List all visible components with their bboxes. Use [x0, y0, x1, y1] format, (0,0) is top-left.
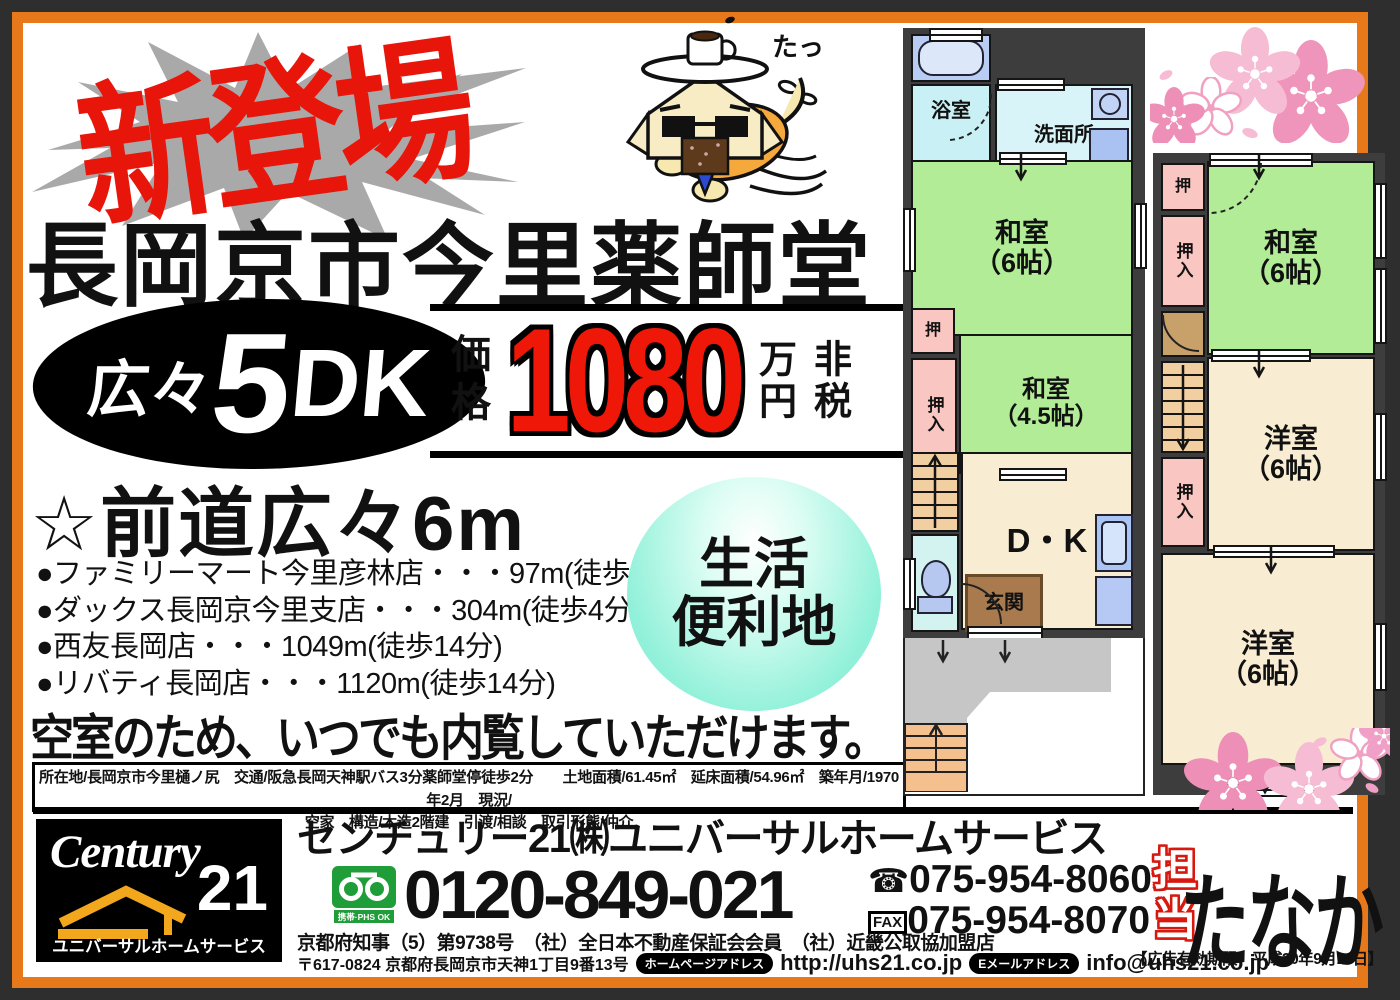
window-mark — [1374, 623, 1387, 691]
price-amount: 1080 — [506, 307, 740, 455]
century21-logo: Century 21 ユニバーサルホームサービス — [36, 819, 282, 962]
company-name: センチュリー21㈱ユニバーサルホームサービス — [297, 818, 1107, 860]
list-item: ●リバティ長岡店・・・1120m(徒歩14分) — [36, 666, 683, 703]
kitchen-sink-bowl — [1101, 521, 1127, 565]
sink-bowl — [1099, 93, 1121, 115]
closet-oshiire-lower: 押入 — [1161, 457, 1205, 547]
mascot-dog-illustration: たっ — [610, 14, 840, 209]
window-mark — [1374, 183, 1387, 259]
room-label: 押入 — [924, 396, 943, 434]
homepage-url: http://uhs21.co.jp — [780, 950, 962, 976]
closet-oshi: 押 — [1161, 163, 1205, 211]
room-label: 和室 （6帖） — [1243, 228, 1339, 288]
window-mark — [1374, 413, 1387, 481]
toilet-tank-icon — [917, 596, 953, 614]
logo-brand-text: Century — [50, 825, 200, 879]
window-mark — [997, 78, 1065, 91]
homepage-label-pill: ホームページアドレス — [636, 953, 773, 974]
email-label-pill: Eメールアドレス — [969, 953, 1079, 974]
window-mark — [903, 558, 916, 610]
room-label: 押入 — [1173, 242, 1192, 280]
stairs-1f — [911, 452, 959, 532]
window-mark — [1209, 153, 1313, 167]
cherry-blossoms-bottom — [1160, 728, 1390, 810]
door-opening — [1213, 545, 1335, 558]
room-label: 洋室 （6帖） — [1243, 424, 1339, 484]
room-washitsu-6: 和室 （6帖） — [1207, 161, 1375, 355]
room-label: 玄関 — [984, 592, 1024, 614]
life-convenience-badge: 生活 便利地 — [627, 477, 881, 711]
room-label: 押 — [1175, 178, 1191, 196]
window-mark — [929, 28, 983, 42]
driveway-area — [903, 638, 1145, 796]
door-opening — [1211, 349, 1311, 362]
property-details-box: 所在地/長岡京市今里樋ノ尻 交通/阪急長岡天神駅バス3分薬師堂停徒歩2分 土地面… — [32, 762, 906, 812]
room-genkan: 玄関 — [965, 574, 1043, 632]
stairs-2f — [1161, 361, 1205, 453]
list-item: ●ダックス長岡京今里支店・・・304m(徒歩4分) — [36, 593, 683, 630]
cherry-blossoms-top — [1150, 25, 1390, 143]
toilet-icon — [921, 560, 951, 598]
office-address: 〒617-0824 京都府長岡京市天神1丁目9番13号 — [297, 951, 629, 975]
flyer-page: 新登場 たっ 長岡京市今里薬師堂 広々5DK 価格 1 — [0, 0, 1400, 1000]
door-opening — [999, 468, 1067, 481]
closet-oshi: 押 — [911, 308, 955, 354]
ad-expiry-note: 【広告有効期限 平成30年9月10日】 — [1132, 947, 1383, 969]
logo-number-text: 21 — [197, 851, 268, 925]
window-mark — [903, 208, 916, 272]
vacancy-slogan: 空室のため、いつでも内覧していただけます。 — [30, 698, 885, 770]
stove-icon — [1095, 576, 1133, 626]
freedial-phs-label: 携帯·PHS OK — [338, 912, 391, 922]
list-item: ●西友長岡店・・・1049m(徒歩14分) — [36, 629, 683, 666]
floorplan-1f: 浴室 洗面所 和室 （6帖） 押 押入 和室 （4.5帖） D・K — [903, 28, 1145, 638]
details-line1: 所在地/長岡京市今里樋ノ尻 交通/阪急長岡天神駅バス3分薬師堂停徒歩2分 土地面… — [35, 767, 903, 812]
floorplan-2f: 押 和室 （6帖） 押入 押入 洋室 （6帖） 洋室 （6帖） — [1153, 153, 1385, 795]
footer-divider — [33, 807, 1353, 814]
washer-icon — [1089, 128, 1129, 162]
phone-icon: ☎ — [868, 862, 909, 899]
price-label: 価格 — [438, 333, 496, 429]
layout-badge-prefix: 広々 — [84, 339, 216, 429]
room-label: 洋室 （6帖） — [1220, 629, 1316, 689]
logo-roof-icon — [56, 881, 206, 939]
window-mark — [1134, 203, 1147, 269]
room-label: 洗面所 — [1034, 124, 1094, 146]
room-label: 浴室 — [931, 100, 971, 122]
address-row: 〒617-0824 京都府長岡京市天神1丁目9番13号 ホームページアドレス h… — [297, 950, 1269, 976]
room-label: 押 — [925, 322, 941, 340]
list-item: ●ファミリーマート今里彦林店・・・97m(徒歩2分) — [36, 556, 683, 593]
closet-oshiire-upper: 押入 — [1161, 215, 1205, 307]
driveway-annotations — [905, 638, 1143, 792]
price-block: 価格 1080 万円 非税 — [430, 304, 906, 458]
sink-icon — [1091, 88, 1129, 120]
freedial-icon: 携帯·PHS OK — [332, 866, 396, 924]
window-mark — [1374, 268, 1387, 344]
room-youshitsu-mid: 洋室 （6帖） — [1207, 357, 1375, 551]
price-tax-note: 非税 — [802, 339, 857, 423]
layout-badge-letters: DK — [286, 329, 434, 439]
tel-number: 075-954-8060 — [909, 858, 1152, 901]
price-unit: 万円 — [747, 339, 802, 423]
room-label: 和室 （4.5帖） — [993, 377, 1098, 431]
room-label: D・K — [1007, 523, 1088, 560]
stair-landing — [1161, 311, 1205, 357]
freedial-number: 0120-849-021 — [404, 856, 791, 934]
room-label: 和室 （6帖） — [974, 218, 1070, 278]
mascot-sound-text: たっ — [772, 32, 824, 62]
nearby-facility-list: ●ファミリーマート今里彦林店・・・97m(徒歩2分) ●ダックス長岡京今里支店・… — [36, 556, 683, 702]
layout-badge-number: 5 — [206, 313, 297, 455]
bathtub-icon — [918, 40, 984, 76]
logo-subtitle: ユニバーサルホームサービス — [36, 933, 282, 957]
kitchen-sink-icon — [1095, 514, 1133, 572]
door-opening — [999, 152, 1067, 165]
room-label: 押入 — [1173, 483, 1192, 521]
